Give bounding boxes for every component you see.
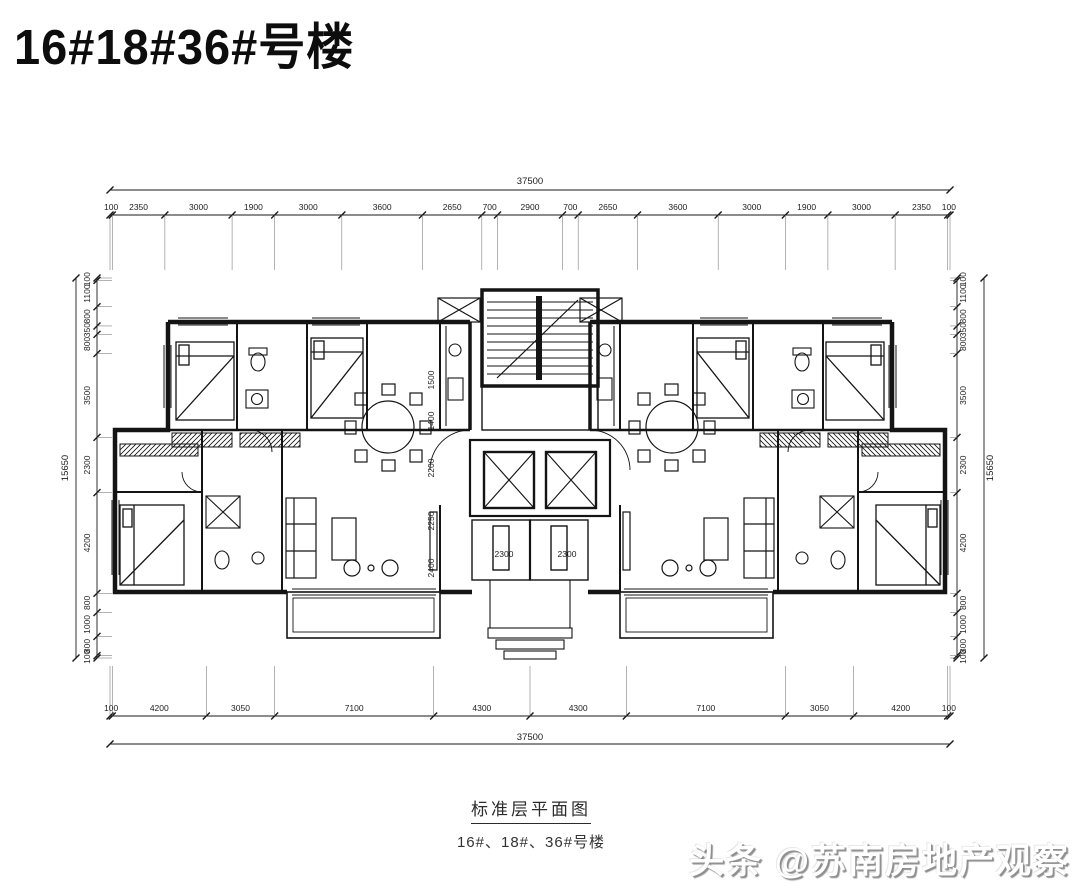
elevator-shaft [484, 452, 596, 508]
dim-label: 4200 [82, 533, 92, 552]
dim-label: 800 [958, 337, 968, 351]
dim-label: 1100 [82, 284, 92, 303]
dim-label: 2300 [82, 455, 92, 474]
dim-label: 100 [942, 202, 956, 212]
dim-label: 100 [958, 272, 968, 286]
bed [311, 338, 363, 418]
dim-label: 4300 [569, 703, 588, 713]
dim-label: 2400 [426, 558, 436, 577]
dim-label: 4200 [891, 703, 910, 713]
dim-label: 1000 [958, 615, 968, 634]
dim-label: 2350 [912, 202, 931, 212]
dim-label: 100 [82, 649, 92, 663]
dim-label: 3600 [668, 202, 687, 212]
entry-steps [488, 580, 572, 659]
dim-label: 1500 [426, 370, 436, 389]
sofa [286, 498, 437, 578]
apartment-unit-right [580, 298, 948, 638]
dim-label: 100 [942, 703, 956, 713]
dim-label: 1900 [244, 202, 263, 212]
dim-label: 1900 [797, 202, 816, 212]
drawing-caption: 标准层平面图 16#、18#、36#号楼 [401, 795, 661, 852]
dim-label: 37500 [517, 732, 543, 743]
dim-label: 2350 [129, 202, 148, 212]
flue-shaft [438, 298, 480, 322]
dim-label: 4300 [472, 703, 491, 713]
dim-label: 1000 [82, 615, 92, 634]
bathroom-fixtures [206, 496, 264, 569]
dim-label: 700 [483, 202, 497, 212]
dim-label: 3050 [231, 703, 250, 713]
dim-label: 3000 [852, 202, 871, 212]
dim-label: 2650 [443, 202, 462, 212]
dim-label: 3500 [82, 386, 92, 405]
dim-label: 1100 [958, 284, 968, 303]
dim-label: 7100 [696, 703, 715, 713]
dim-label: 37500 [517, 176, 543, 187]
dim-label: 100 [104, 703, 118, 713]
bed [176, 342, 234, 420]
dim-label: 2200 [426, 458, 436, 477]
dim-label: 2650 [598, 202, 617, 212]
dim-label: 2250 [426, 511, 436, 530]
dimension-annotations: 3750010023503000190030003600265070029007… [60, 176, 996, 748]
dim-label: 3500 [958, 386, 968, 405]
dim-label: 100 [958, 649, 968, 663]
watermark-text: 头条 @苏南房地产观察 [689, 833, 1070, 884]
dim-label: 100 [104, 202, 118, 212]
kitchen-fixtures [446, 326, 463, 426]
wardrobe [120, 433, 300, 456]
dim-label: 15650 [60, 455, 71, 481]
dim-label: 2300 [958, 455, 968, 474]
apartment-unit-left [112, 298, 480, 638]
dim-label: 3000 [742, 202, 761, 212]
dim-label: 3000 [189, 202, 208, 212]
dim-label: 2300 [558, 549, 577, 559]
dim-label: 800 [958, 309, 968, 323]
bathroom-fixtures [246, 348, 268, 408]
floor-plan-canvas: 3750010023503000190030003600265070029007… [0, 0, 1080, 886]
dim-label: 350 [958, 323, 968, 337]
dim-label: 4200 [150, 703, 169, 713]
dim-label: 700 [563, 202, 577, 212]
dim-label: 7100 [345, 703, 364, 713]
dim-label: 2900 [521, 202, 540, 212]
article-image: 16#18#36#号楼 [0, 0, 1080, 886]
dim-label: 100 [82, 272, 92, 286]
dim-label: 3050 [810, 703, 829, 713]
dim-label: 800 [958, 595, 968, 609]
dim-label: 3600 [373, 202, 392, 212]
dim-label: 3000 [299, 202, 318, 212]
dim-label: 4200 [958, 533, 968, 552]
dining-table [345, 384, 431, 471]
dim-label: 2300 [495, 549, 514, 559]
caption-title: 标准层平面图 [471, 795, 591, 824]
dim-label: 15650 [985, 455, 996, 481]
dim-label: 800 [82, 337, 92, 351]
bed [120, 505, 184, 585]
caption-subtitle: 16#、18#、36#号楼 [401, 831, 661, 852]
dim-label: 1400 [426, 411, 436, 430]
balcony [287, 592, 440, 638]
dim-label: 350 [82, 323, 92, 337]
dim-label: 800 [82, 595, 92, 609]
dim-label: 800 [82, 309, 92, 323]
